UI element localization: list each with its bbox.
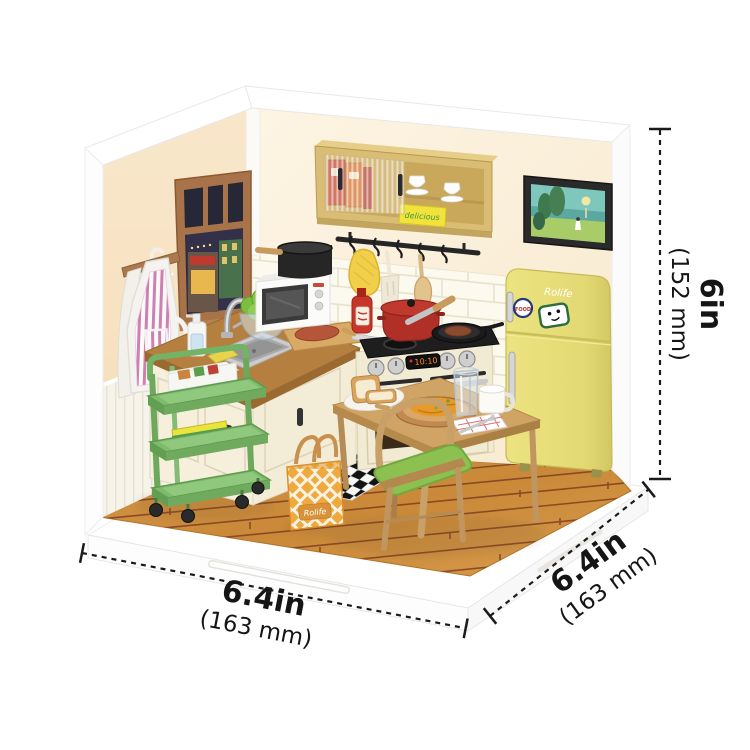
product-image: delicious — [0, 0, 750, 750]
height-mm: (152 mm) — [666, 247, 692, 361]
wall-cabinet: delicious — [315, 140, 498, 238]
stove-display: 10:10 — [406, 354, 441, 370]
drinking-glass — [454, 368, 478, 417]
refrigerator: Rolife FOOD — [506, 269, 612, 478]
dimension-height: 6in (152 mm) — [649, 129, 728, 479]
steak — [445, 326, 471, 336]
fridge-sticker-food: FOOD — [514, 299, 532, 317]
frame-edge-left — [85, 148, 103, 535]
fridge-sticker-toast — [538, 303, 569, 328]
pot-handle — [258, 250, 280, 252]
miniature-kitchen-scene: delicious — [0, 0, 750, 750]
ribbed-glass-door — [323, 154, 404, 214]
bag-label: Rolife — [298, 503, 331, 521]
height-inches: 6in — [693, 278, 728, 331]
wall-art — [524, 176, 612, 250]
cabinet-handle-2 — [297, 408, 303, 426]
delicious-box: delicious — [399, 204, 446, 227]
frame-edge-right — [612, 125, 630, 487]
fridge-sticker-text: FOOD — [515, 307, 531, 313]
fridge-handle-top — [507, 292, 513, 322]
